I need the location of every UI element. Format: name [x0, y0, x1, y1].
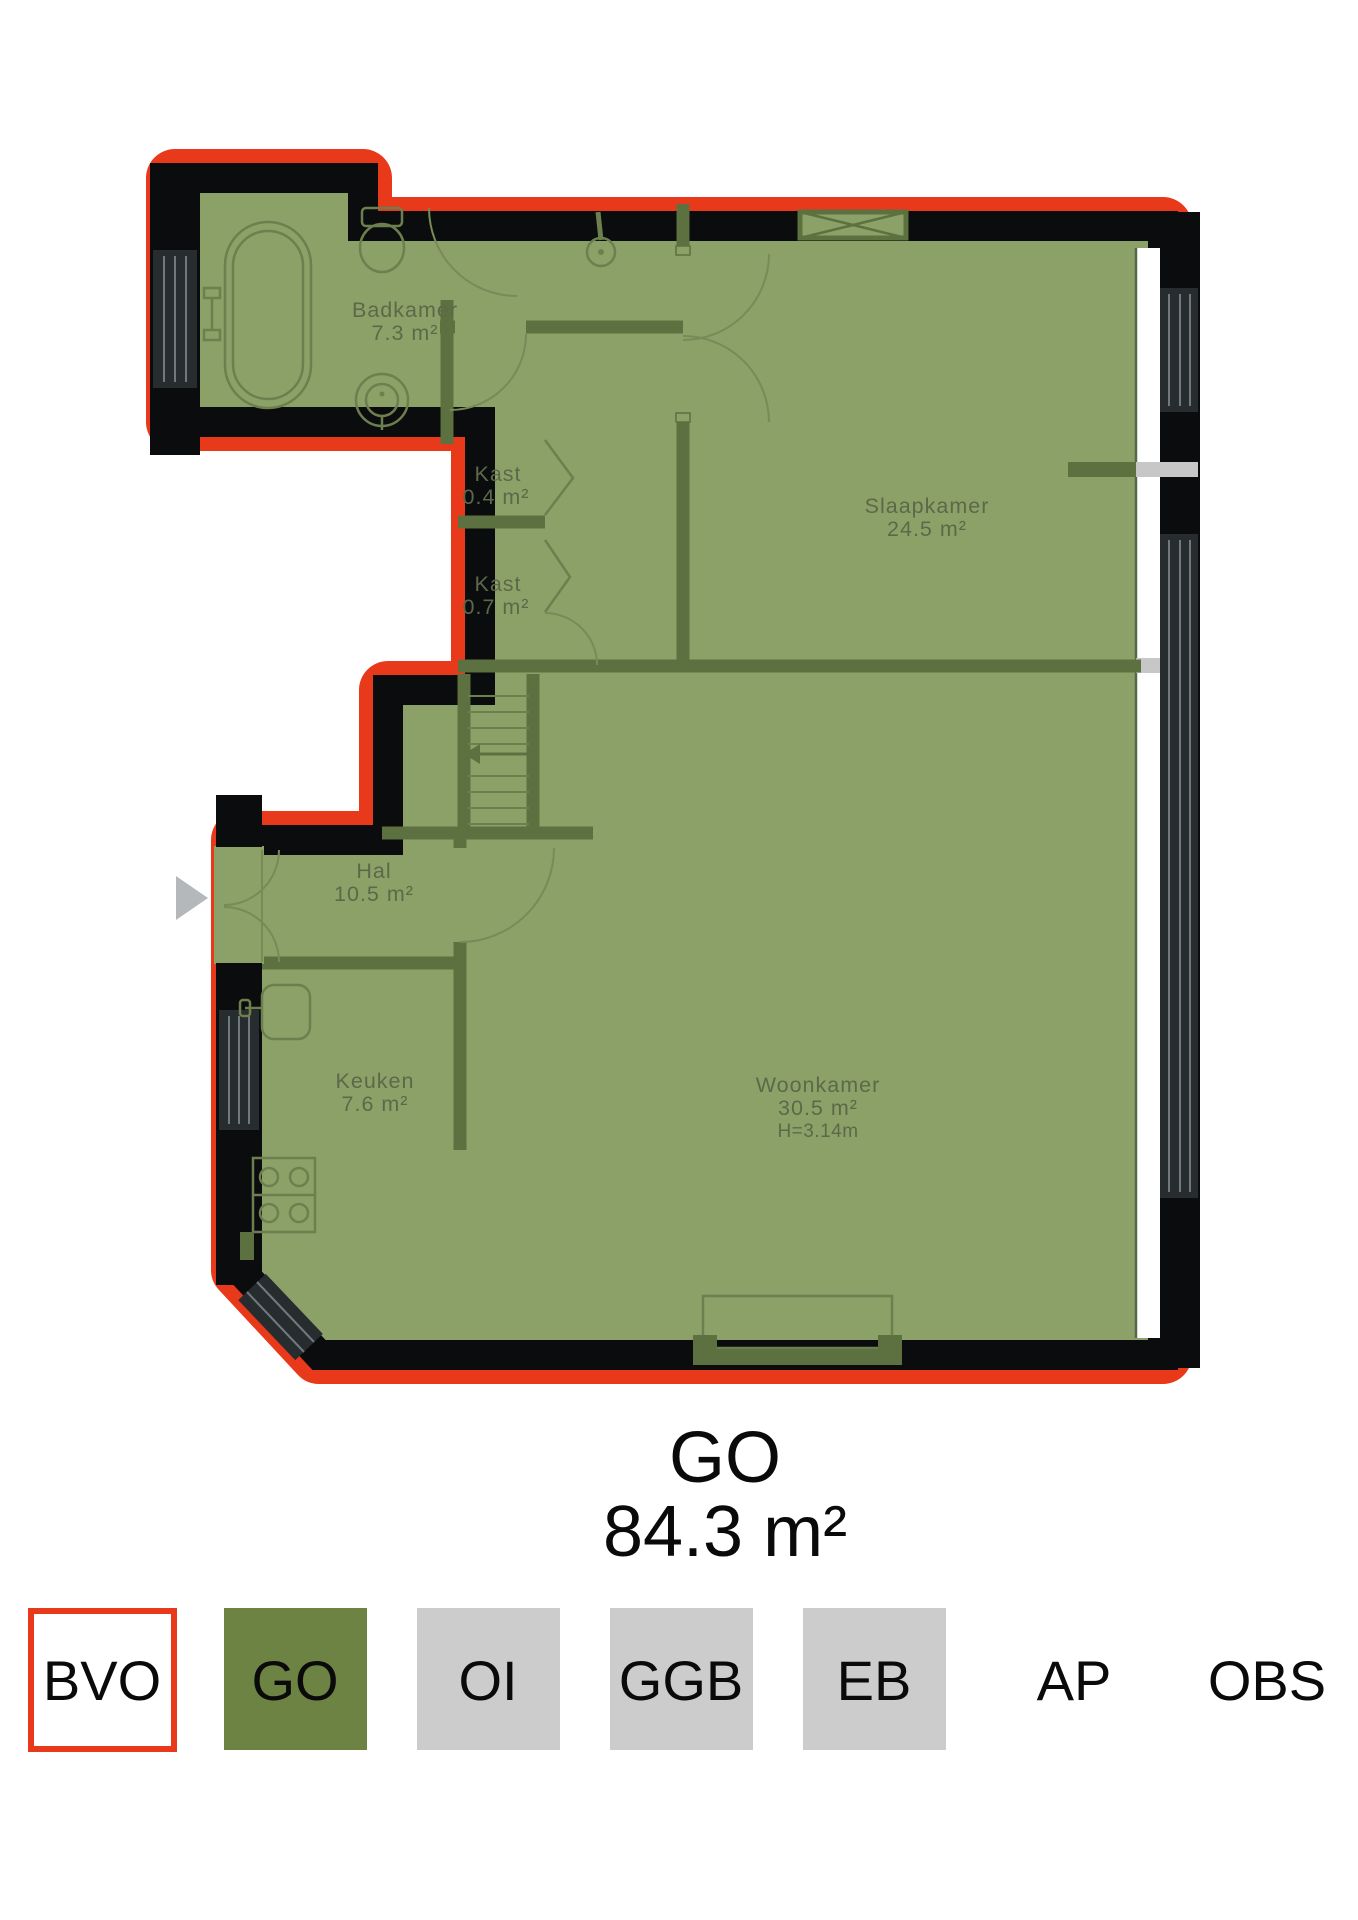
room-area-keuken: 7.6 m²	[342, 1092, 409, 1116]
bedroom-wall-stub	[1068, 462, 1138, 477]
legend-label-ggb: GGB	[619, 1649, 743, 1712]
exterior-wall	[175, 178, 1163, 1355]
room-label-badkamer: Badkamer	[352, 298, 458, 322]
room-area-slaapkamer: 24.5 m²	[887, 517, 967, 541]
room-label-keuken: Keuken	[336, 1069, 415, 1093]
legend-label-oi: OI	[458, 1649, 517, 1712]
summary-area: 84.3 m²	[603, 1492, 847, 1572]
legend-label-bvo: BVO	[43, 1649, 161, 1712]
entrance-arrow-icon	[176, 876, 208, 920]
ventilation-icon	[800, 212, 906, 238]
legend: BVO GO OI GGB EB AP OBS	[31, 1608, 1326, 1750]
room-area-kast-large: 0.7 m²	[463, 595, 530, 619]
room-height-woonkamer: H=3.14m	[777, 1121, 858, 1142]
room-area-hal: 10.5 m²	[334, 882, 414, 906]
summary: GO 84.3 m²	[603, 1418, 847, 1572]
room-label-hal: Hal	[356, 859, 391, 883]
summary-label: GO	[669, 1418, 781, 1498]
room-label-kast-small: Kast	[474, 462, 521, 486]
room-area-woonkamer: 30.5 m²	[778, 1096, 858, 1120]
room-area-kast-small: 0.4 m²	[463, 485, 530, 509]
legend-label-ap: AP	[1037, 1649, 1112, 1712]
room-label-kast-large: Kast	[474, 572, 521, 596]
legend-label-go: GO	[251, 1649, 338, 1712]
legend-label-eb: EB	[837, 1649, 912, 1712]
room-label-woonkamer: Woonkamer	[756, 1073, 881, 1097]
room-area-badkamer: 7.3 m²	[372, 321, 439, 345]
east-wall-recess	[1136, 248, 1160, 1338]
room-label-slaapkamer: Slaapkamer	[865, 494, 990, 518]
legend-label-obs: OBS	[1208, 1649, 1326, 1712]
floor-plan: Badkamer 7.3 m² Kast 0.4 m² Kast 0.7 m² …	[150, 163, 1200, 1368]
floor-plan-page: Badkamer 7.3 m² Kast 0.4 m² Kast 0.7 m² …	[0, 0, 1358, 1920]
bedroom-wall-stub-gray	[1136, 462, 1198, 477]
